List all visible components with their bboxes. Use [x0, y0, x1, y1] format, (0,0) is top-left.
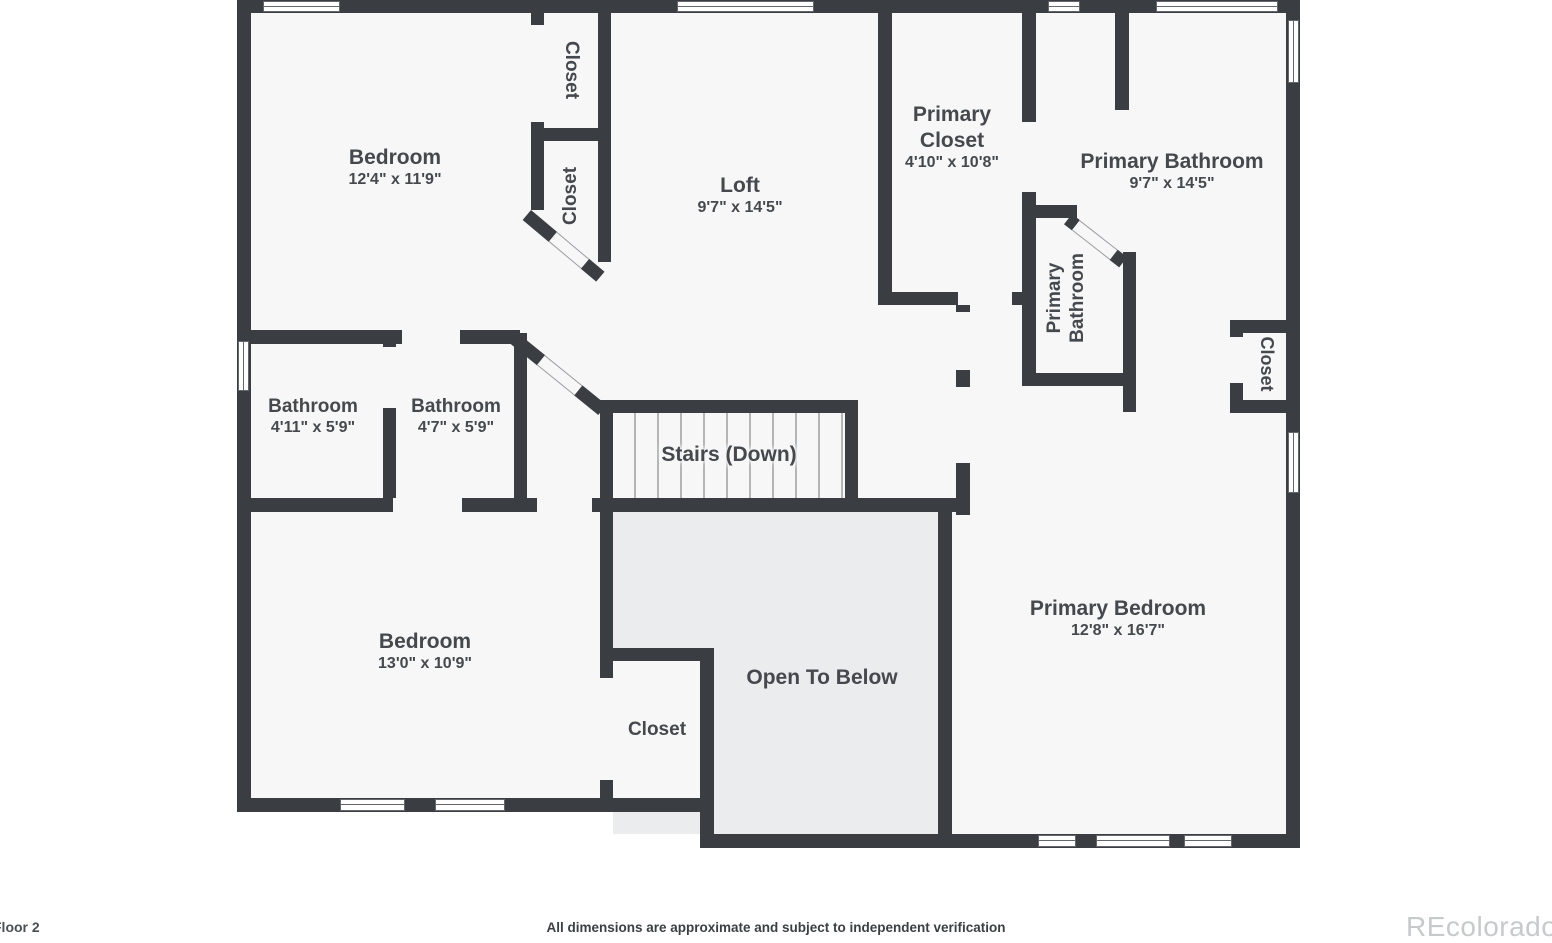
door-opening: [531, 25, 544, 122]
window: [677, 1, 814, 12]
window: [435, 799, 505, 811]
wall: [938, 498, 952, 848]
window: [1184, 835, 1232, 847]
closet-bottom-floor: [613, 648, 714, 798]
wall: [598, 0, 611, 262]
window: [1156, 1, 1278, 12]
wall: [600, 400, 858, 413]
wall: [600, 648, 714, 661]
door-opening: [537, 498, 592, 512]
door-opening: [1022, 122, 1036, 192]
wall: [845, 400, 858, 511]
wall: [700, 648, 714, 798]
wall: [237, 330, 520, 344]
wall: [237, 0, 251, 812]
wall: [700, 798, 714, 848]
window: [1288, 20, 1299, 83]
wall: [878, 292, 1036, 305]
floor-plan-page: { "colors":{"wall":"#3a3d41","floor":"#f…: [0, 0, 1552, 941]
wall: [878, 0, 892, 305]
window: [1288, 432, 1299, 493]
floor-plan: Bedroom 12'4" x 11'9" Closet Closet Loft…: [0, 0, 1552, 941]
window: [1048, 1, 1080, 12]
window: [238, 341, 249, 391]
wall: [514, 333, 527, 512]
window: [340, 799, 405, 811]
door-opening: [393, 498, 462, 512]
wall: [1022, 373, 1136, 386]
window: [263, 1, 340, 12]
wall: [600, 400, 613, 512]
door-opening: [956, 312, 970, 370]
wall: [1115, 0, 1129, 110]
recolorado-watermark: REcolorado: [1406, 911, 1552, 943]
door-opening: [1230, 337, 1243, 383]
wall: [1286, 0, 1300, 848]
disclaimer-text: All dimensions are approximate and subje…: [0, 920, 1552, 935]
wall: [600, 498, 970, 512]
window: [1038, 835, 1076, 847]
stair-treads: [613, 413, 845, 498]
door-opening: [600, 678, 613, 780]
wall: [1123, 252, 1136, 412]
window: [1096, 835, 1170, 847]
door-opening: [402, 330, 460, 344]
wall: [1022, 0, 1036, 386]
door-opening: [958, 292, 1012, 305]
door-opening: [956, 387, 970, 463]
door-opening: [383, 347, 396, 408]
